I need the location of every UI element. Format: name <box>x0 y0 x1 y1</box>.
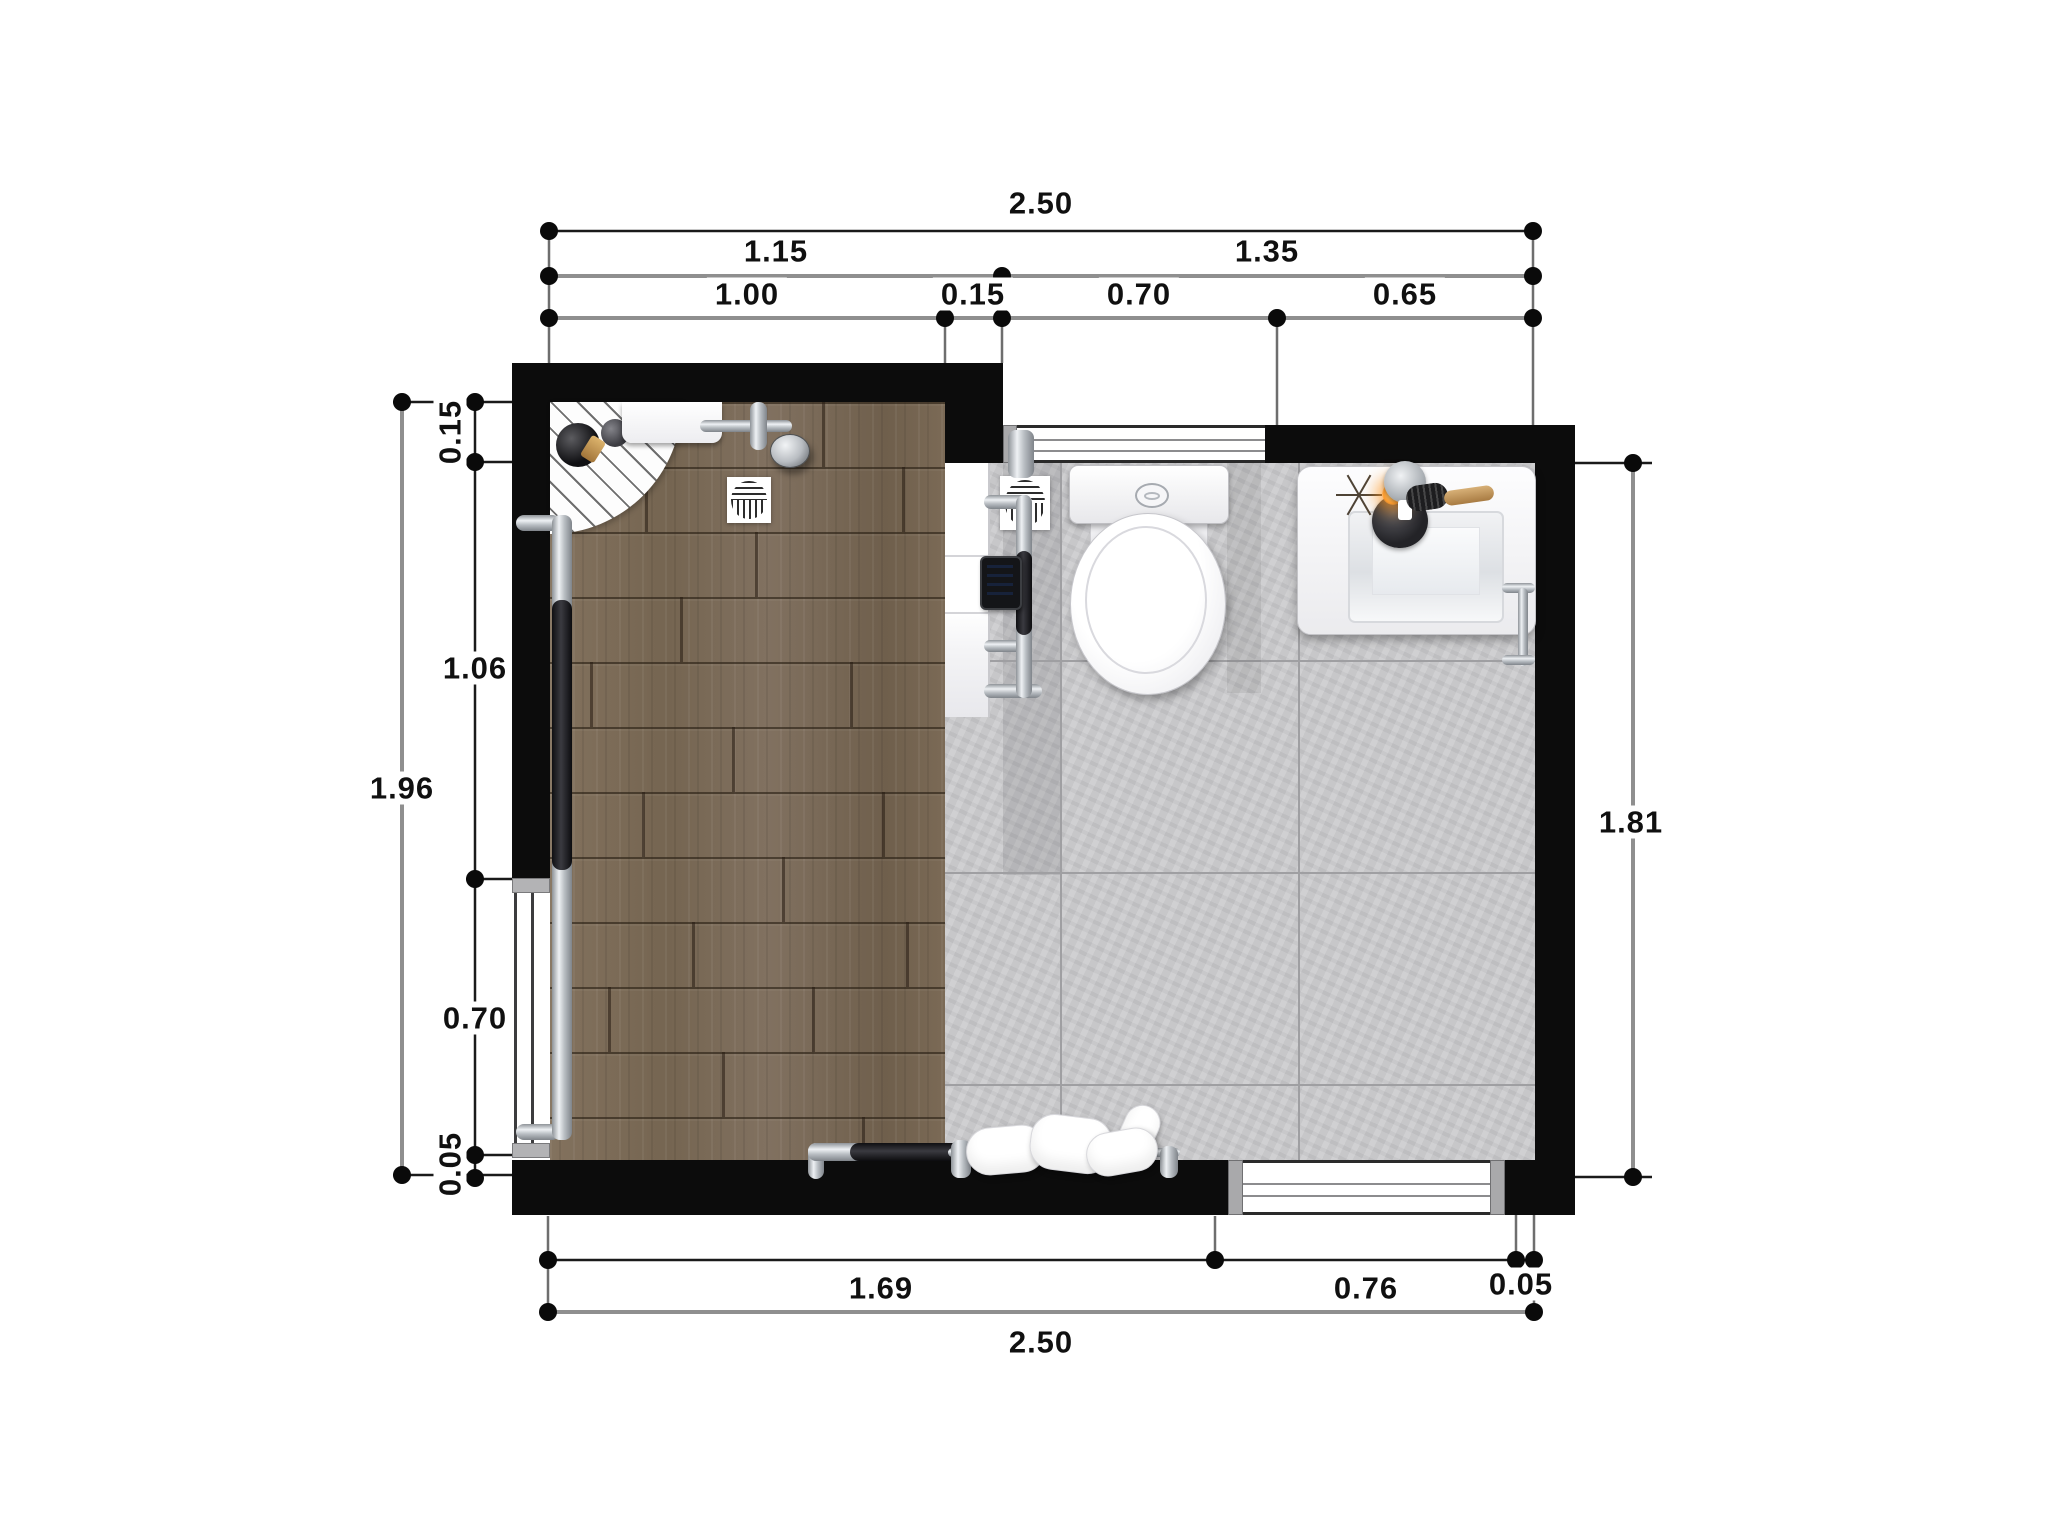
plank-joint <box>680 597 683 662</box>
window-bottom-jamb-left <box>1228 1160 1243 1215</box>
plank-joint <box>902 467 905 532</box>
valve-icon <box>1008 430 1034 478</box>
toilet-flush-button <box>1135 483 1169 508</box>
wall-right <box>1535 425 1575 1215</box>
dim-left-1-06: 1.06 <box>435 652 515 685</box>
door-sill-top <box>512 878 550 893</box>
towel-rail-post <box>1160 1146 1178 1178</box>
wall-bottom-right <box>1505 1160 1575 1215</box>
dim-top-0-15: 0.15 <box>933 278 1013 311</box>
window-top <box>1003 425 1265 463</box>
dim-bottom-0-05: 0.05 <box>1481 1268 1561 1301</box>
plank-joint <box>692 922 695 987</box>
grab-bar-grip <box>552 600 572 870</box>
floor-plan: 2.50 1.15 1.35 1.00 0.15 0.70 0.65 0.15 … <box>0 0 2048 1536</box>
partition-shelf-line <box>945 612 988 614</box>
dim-bottom-total: 2.50 <box>1001 1326 1081 1359</box>
dim-top-0-65: 0.65 <box>1365 278 1445 311</box>
towel-hook <box>1502 655 1535 665</box>
wall-step <box>945 363 1003 463</box>
toilet-lid <box>1085 526 1207 674</box>
tile-joint <box>1060 463 1062 1170</box>
plank-joint <box>812 987 815 1052</box>
dim-top-1-15: 1.15 <box>736 235 816 268</box>
plank-joint <box>822 402 825 467</box>
plank-joint <box>608 987 611 1052</box>
toilet-shadow <box>1227 463 1261 693</box>
dim-left-0-70: 0.70 <box>435 1002 515 1035</box>
dim-top-1-00: 1.00 <box>707 278 787 311</box>
dim-top-1-35: 1.35 <box>1227 235 1307 268</box>
grab-bar-grip <box>850 1143 964 1161</box>
door-jamb-line <box>514 893 517 1143</box>
shower-pipe-horizontal <box>700 420 792 432</box>
plank-joint <box>590 662 593 727</box>
plank-joint <box>906 922 909 987</box>
plank-joint <box>782 857 785 922</box>
door-jamb-line <box>531 893 534 1143</box>
plank-joint <box>755 532 758 597</box>
dim-right-total: 1.81 <box>1591 806 1671 839</box>
dim-left-0-05: 0.05 <box>434 1127 467 1201</box>
door-sill-bottom <box>512 1143 550 1158</box>
floor-drain-icon <box>727 477 771 523</box>
wall-left <box>512 363 550 878</box>
shower-pipe-vertical <box>750 402 767 450</box>
dim-top-total: 2.50 <box>1001 187 1081 220</box>
plank-joint <box>882 792 885 857</box>
control-tablet-icon <box>980 556 1022 610</box>
dim-bottom-1-69: 1.69 <box>841 1272 921 1305</box>
towel-radiator-arm <box>984 684 1042 698</box>
plank-joint <box>722 1052 725 1117</box>
dim-left-total: 1.96 <box>362 772 442 805</box>
window-bottom-jamb-right <box>1490 1160 1505 1215</box>
plank-joint <box>732 727 735 792</box>
tile-joint <box>945 1084 1535 1086</box>
window-bottom <box>1243 1160 1490 1215</box>
toilet-bowl <box>1070 513 1226 695</box>
shower-head-icon <box>770 434 810 468</box>
plank-joint <box>642 792 645 857</box>
dim-bottom-0-76: 0.76 <box>1326 1272 1406 1305</box>
tile-joint <box>945 872 1535 874</box>
wall-top-left <box>512 363 945 402</box>
dim-top-0-70: 0.70 <box>1099 278 1179 311</box>
plank-joint <box>850 662 853 727</box>
wall-top-right <box>1265 425 1535 463</box>
dim-left-0-15: 0.15 <box>434 395 467 469</box>
